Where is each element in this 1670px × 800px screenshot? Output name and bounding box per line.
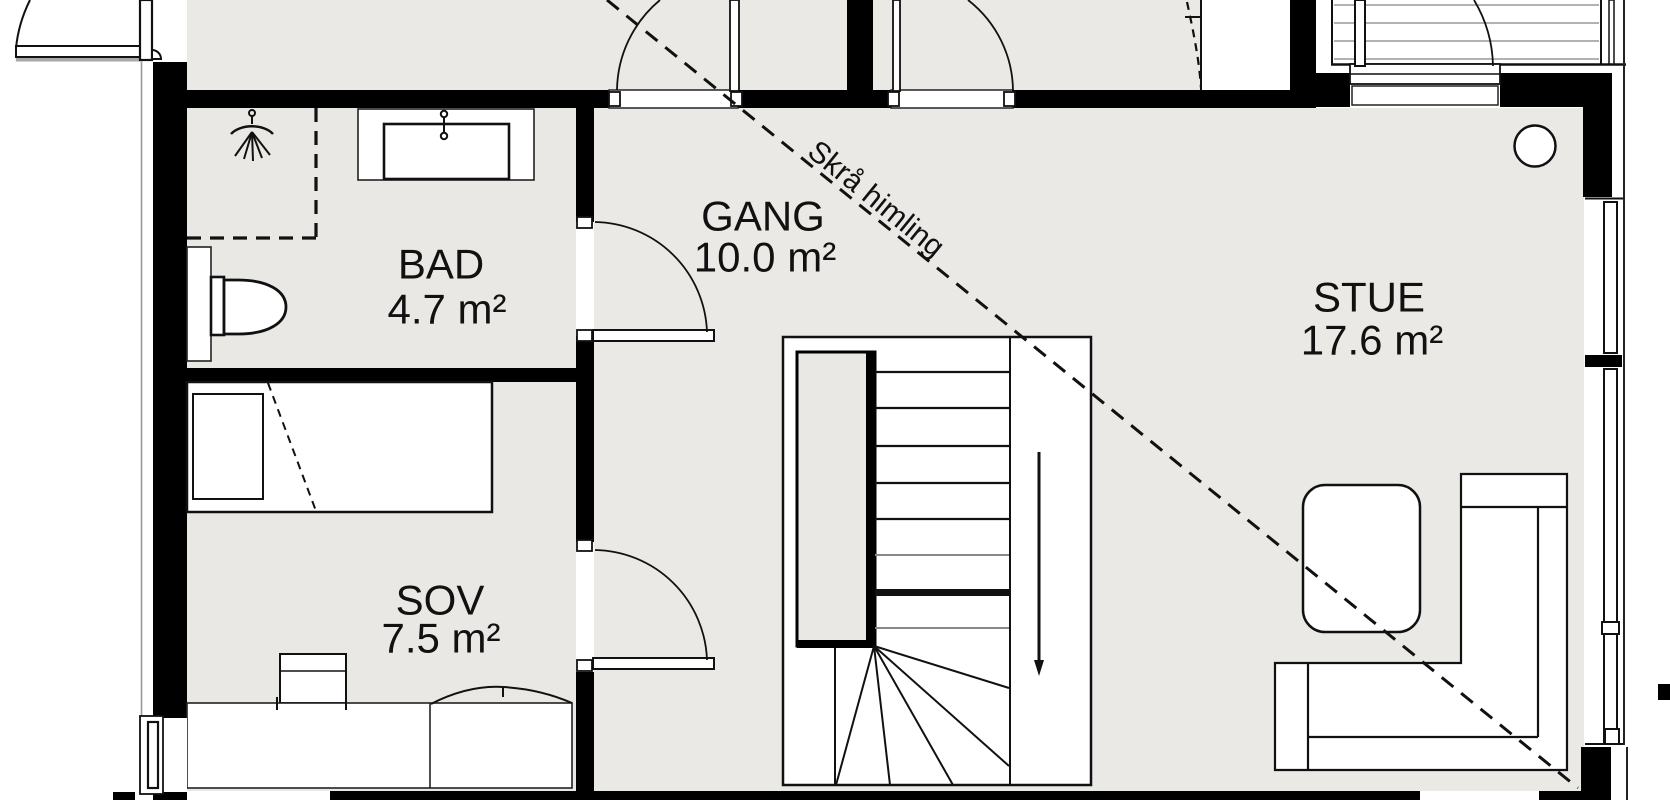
svg-text:17.6 m²: 17.6 m² <box>1301 317 1443 364</box>
svg-text:GANG: GANG <box>701 193 825 240</box>
svg-text:10.0 m²: 10.0 m² <box>694 234 836 281</box>
svg-text:STUE: STUE <box>1313 274 1425 321</box>
svg-text:4.7 m²: 4.7 m² <box>387 286 506 333</box>
svg-text:7.5 m²: 7.5 m² <box>381 615 500 662</box>
svg-text:BAD: BAD <box>398 241 484 288</box>
